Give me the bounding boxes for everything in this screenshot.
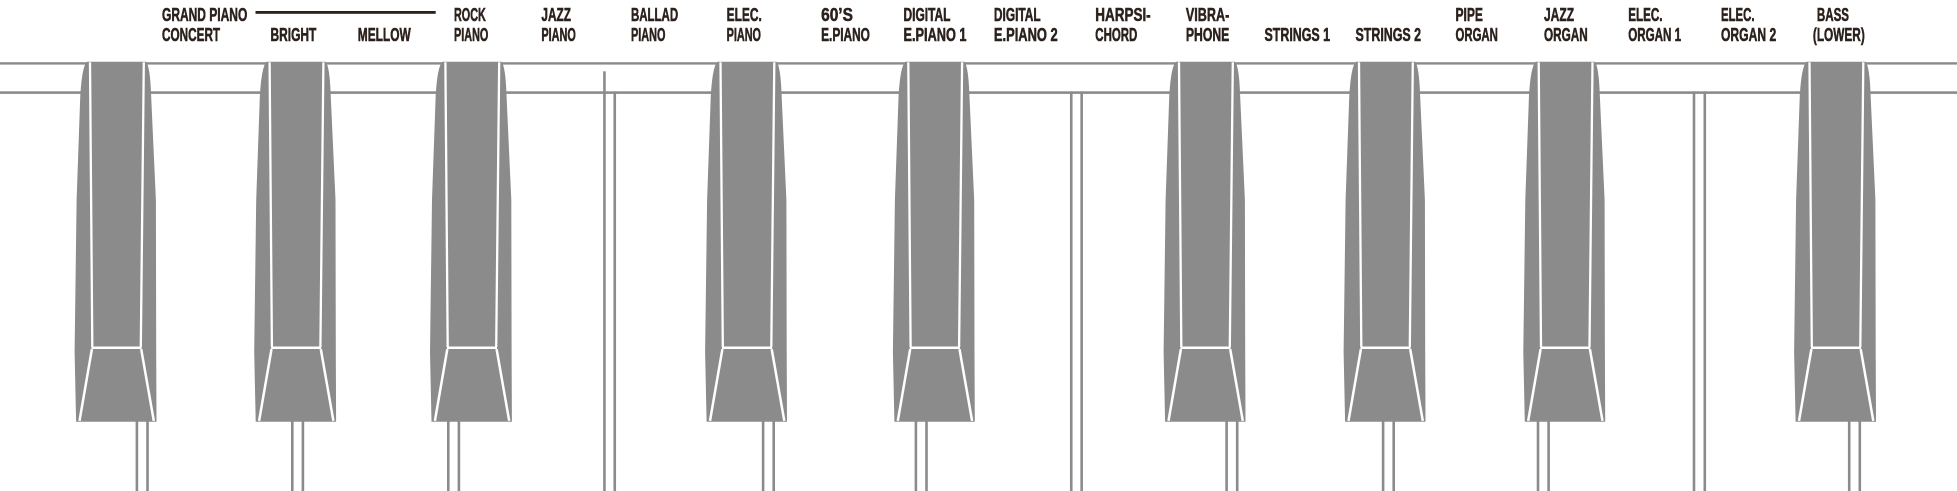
svg-text:PIANO: PIANO xyxy=(631,25,665,45)
svg-text:PHONE: PHONE xyxy=(1186,25,1229,45)
svg-text:ORGAN 1: ORGAN 1 xyxy=(1628,25,1681,45)
svg-text:CHORD: CHORD xyxy=(1095,25,1137,45)
svg-text:STRINGS 2: STRINGS 2 xyxy=(1356,25,1422,45)
svg-text:BALLAD: BALLAD xyxy=(631,5,678,25)
svg-text:ELEC.: ELEC. xyxy=(727,5,762,25)
svg-text:CONCERT: CONCERT xyxy=(162,25,221,45)
svg-text:BASS: BASS xyxy=(1817,5,1849,25)
svg-text:ORGAN 2: ORGAN 2 xyxy=(1721,25,1776,45)
svg-text:PIANO: PIANO xyxy=(541,25,575,45)
svg-text:E.PIANO 1: E.PIANO 1 xyxy=(904,25,967,45)
svg-text:ELEC.: ELEC. xyxy=(1721,5,1754,25)
svg-text:BRIGHT: BRIGHT xyxy=(271,25,317,45)
svg-text:MELLOW: MELLOW xyxy=(358,25,411,45)
svg-text:E.PIANO 2: E.PIANO 2 xyxy=(994,25,1058,45)
svg-text:STRINGS 1: STRINGS 1 xyxy=(1265,25,1331,45)
svg-text:PIANO: PIANO xyxy=(727,25,761,45)
svg-text:E.PIANO: E.PIANO xyxy=(821,25,870,45)
svg-text:PIANO: PIANO xyxy=(454,25,488,45)
svg-text:GRAND PIANO: GRAND PIANO xyxy=(162,5,247,25)
svg-text:ROCK: ROCK xyxy=(454,5,486,25)
svg-text:VIBRA-: VIBRA- xyxy=(1186,5,1229,25)
svg-text:ORGAN: ORGAN xyxy=(1544,25,1588,45)
svg-text:HARPSI-: HARPSI- xyxy=(1095,5,1150,25)
svg-text:PIPE: PIPE xyxy=(1456,5,1483,25)
svg-text:(LOWER): (LOWER) xyxy=(1813,25,1865,45)
svg-text:JAZZ: JAZZ xyxy=(541,5,571,25)
svg-text:ELEC.: ELEC. xyxy=(1628,5,1662,25)
svg-text:JAZZ: JAZZ xyxy=(1544,5,1574,25)
svg-text:DIGITAL: DIGITAL xyxy=(904,5,951,25)
svg-text:ORGAN: ORGAN xyxy=(1456,25,1498,45)
svg-text:DIGITAL: DIGITAL xyxy=(994,5,1041,25)
svg-text:60’S: 60’S xyxy=(821,5,853,25)
